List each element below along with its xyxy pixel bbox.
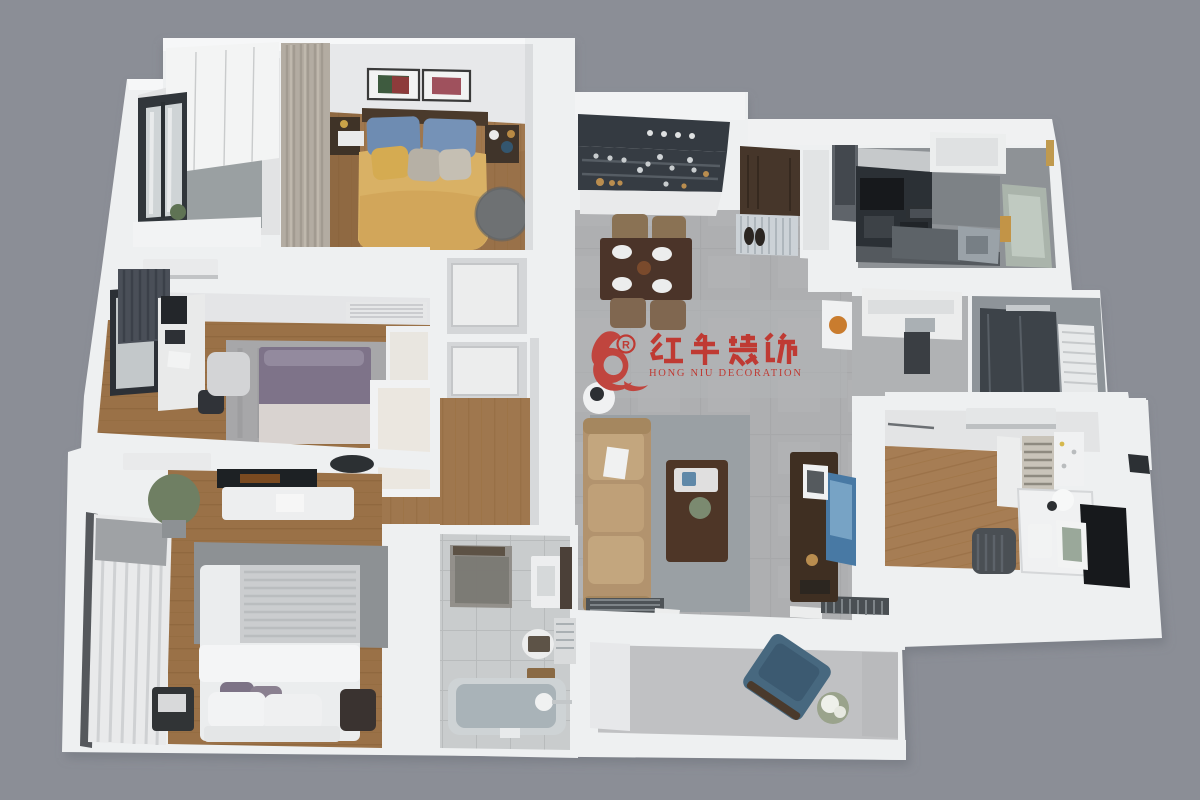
svg-text:R: R [622, 340, 630, 352]
svg-text:HONG NIU DECORATION: HONG NIU DECORATION [649, 368, 803, 379]
